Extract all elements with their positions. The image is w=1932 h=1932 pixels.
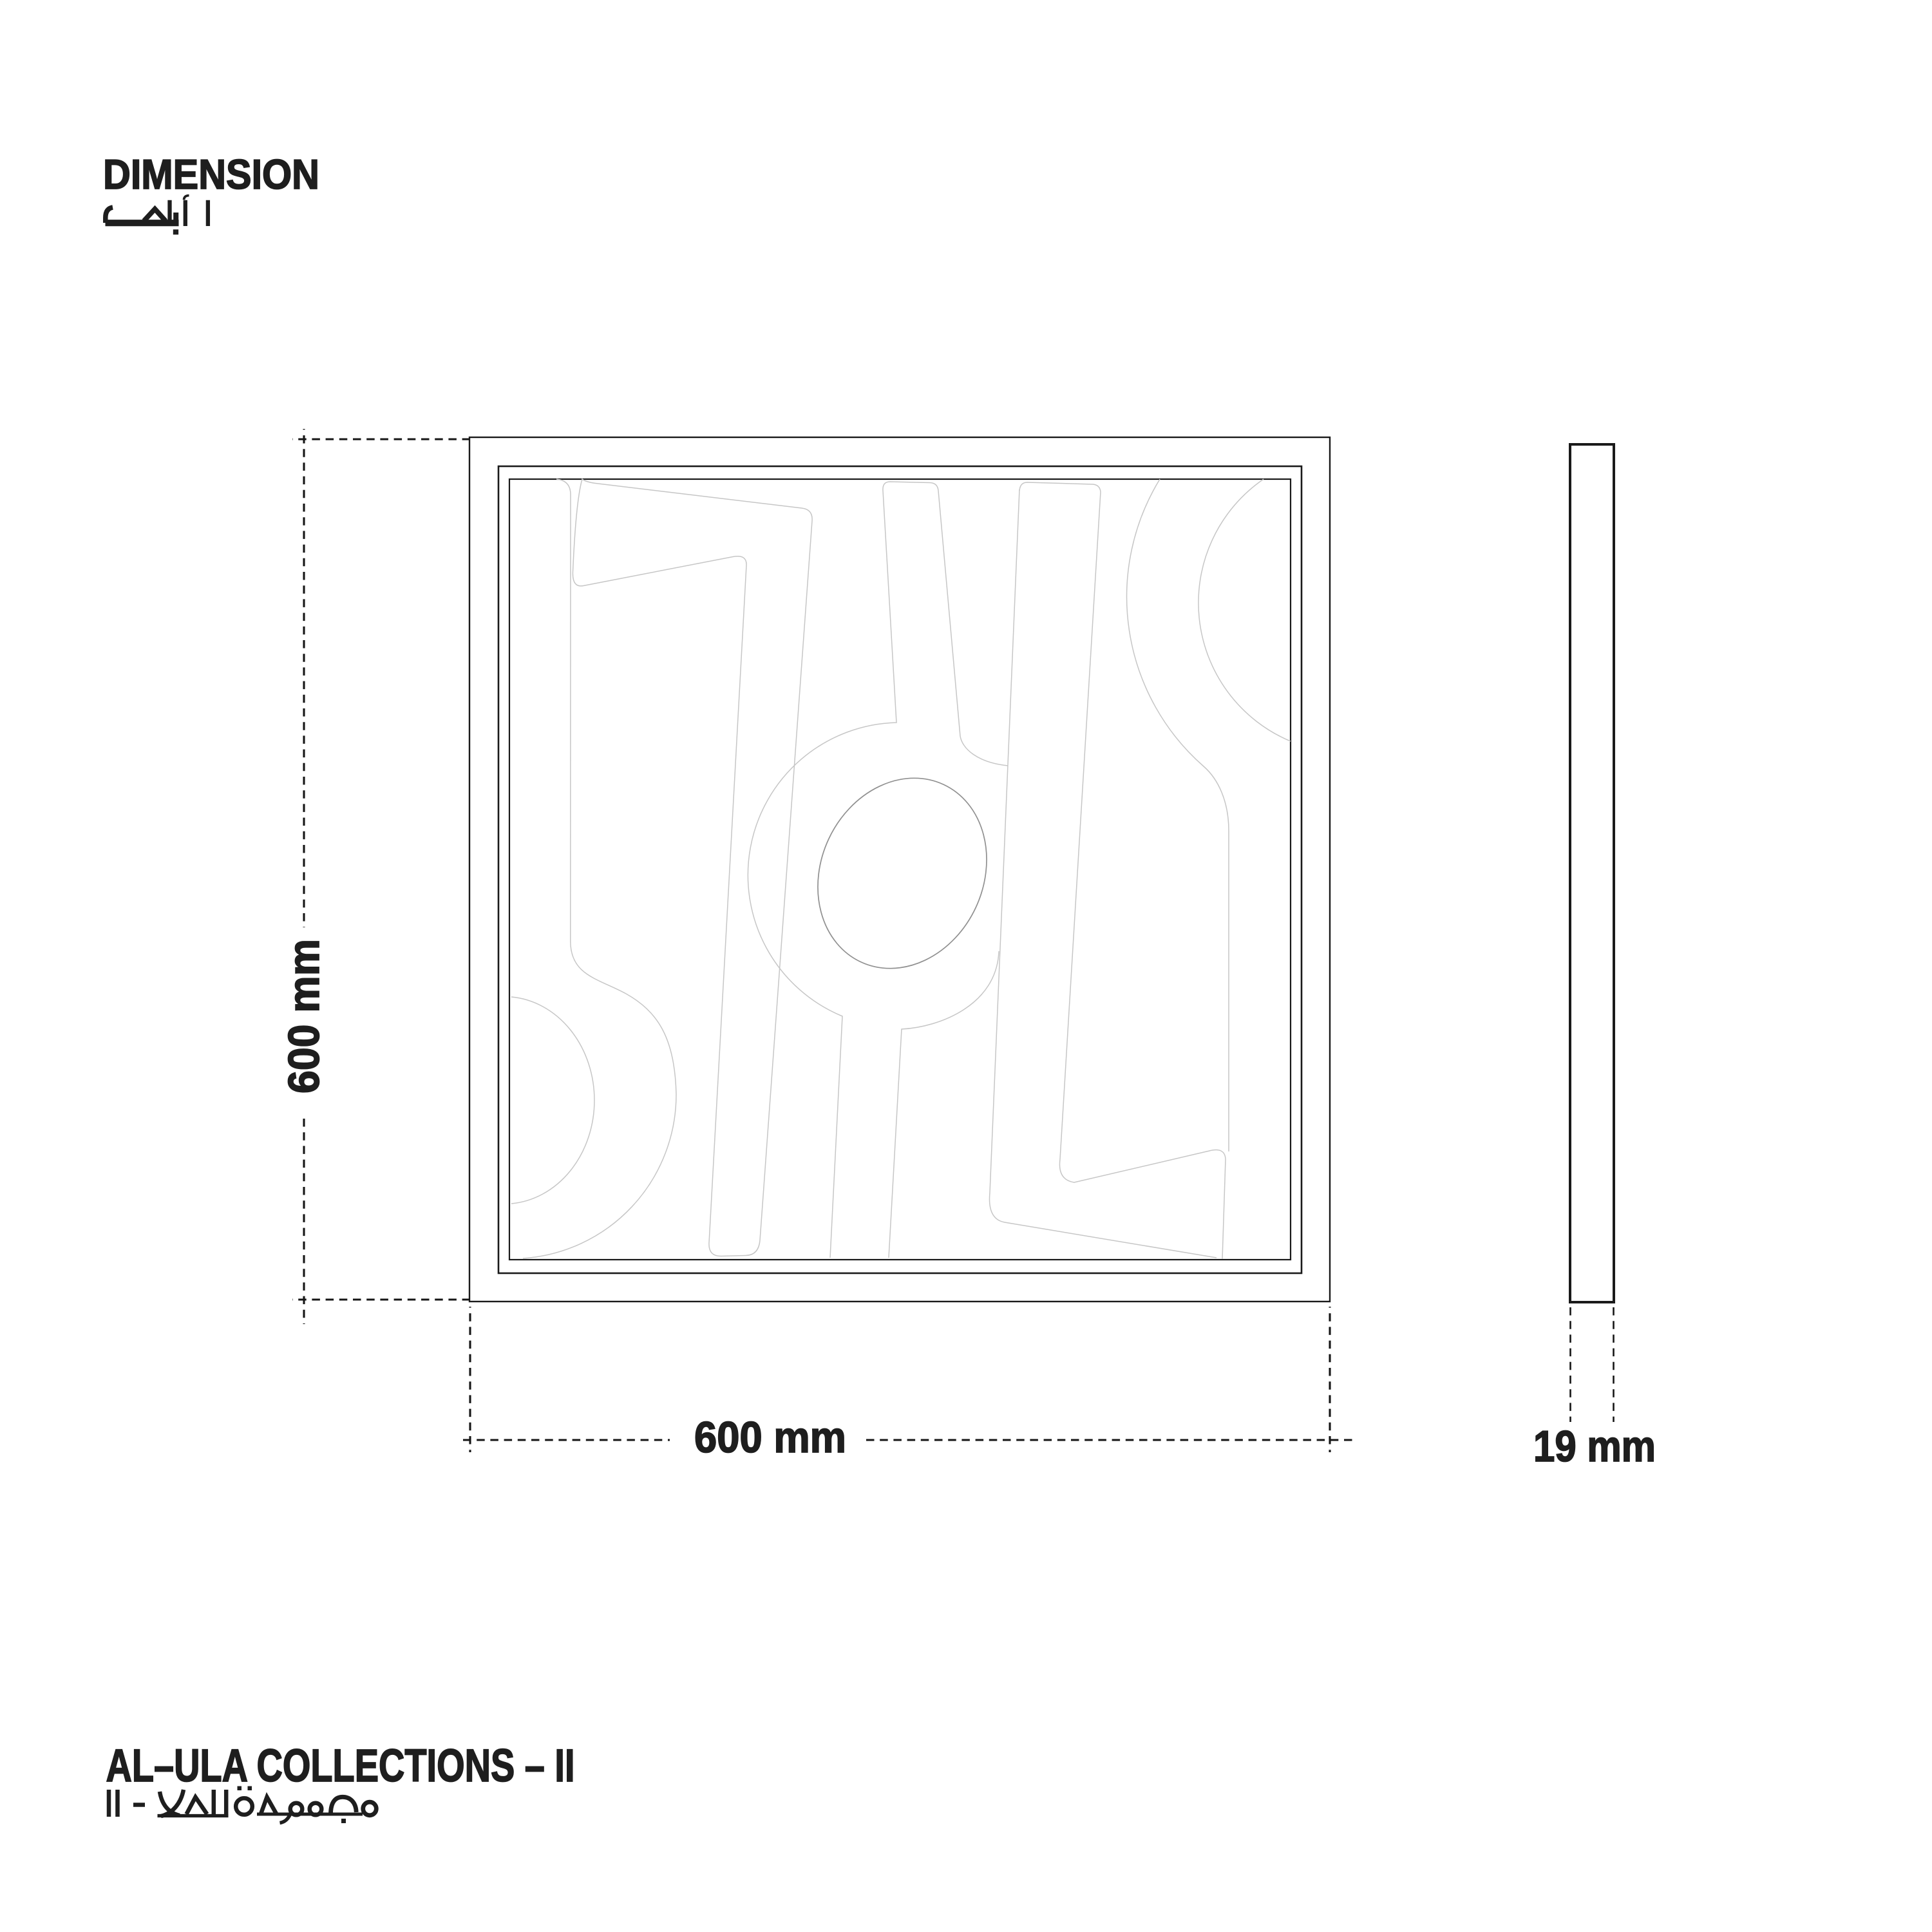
svg-text:DIMENSION: DIMENSION (103, 151, 319, 198)
svg-text:19 mm: 19 mm (1533, 1422, 1656, 1471)
svg-text:600 mm: 600 mm (279, 939, 328, 1094)
svg-text:600 mm: 600 mm (694, 1413, 846, 1462)
svg-text:AL–ULA COLLECTIONS – II: AL–ULA COLLECTIONS – II (106, 1741, 575, 1792)
